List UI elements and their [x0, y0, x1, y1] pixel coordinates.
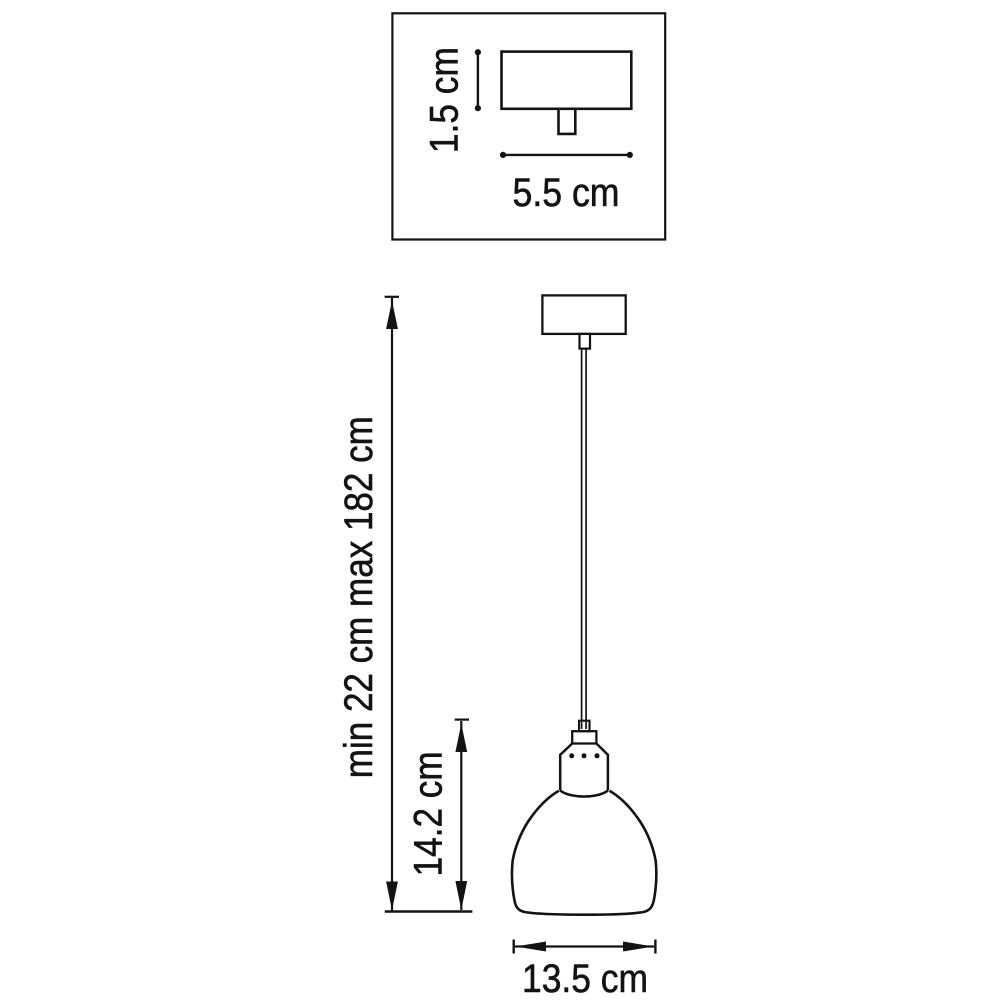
svg-text:1.5 cm: 1.5 cm: [423, 47, 467, 153]
svg-text:min 22 cm max 182 cm: min 22 cm max 182 cm: [337, 416, 381, 778]
svg-text:5.5 cm: 5.5 cm: [513, 171, 620, 215]
svg-text:13.5 cm: 13.5 cm: [522, 957, 648, 1000]
svg-text:14.2 cm: 14.2 cm: [407, 751, 451, 876]
